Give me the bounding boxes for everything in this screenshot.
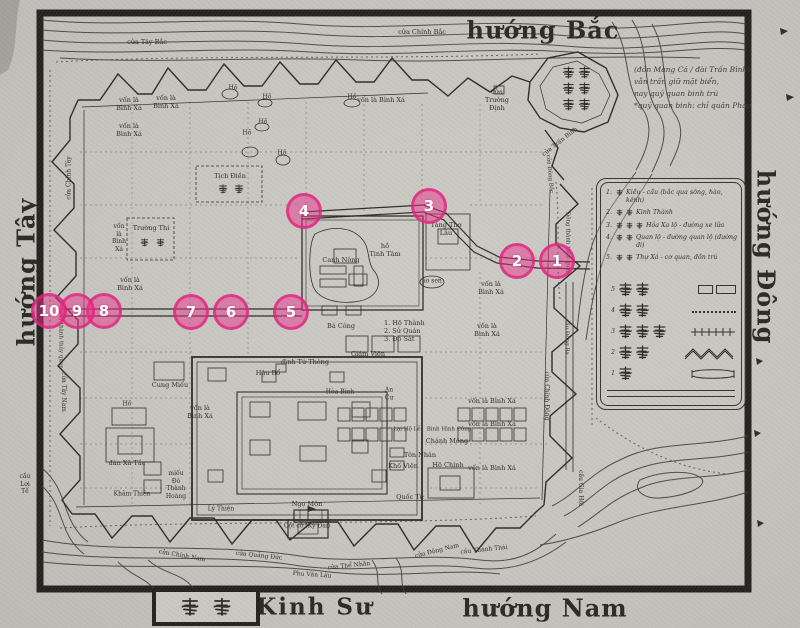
map-marker-4[interactable]: 4 [286,193,322,229]
annotation-markers-layer: 12345678910 [0,0,800,628]
map-marker-1[interactable]: 1 [539,243,575,279]
map-page: hướng Bắc hướng Đông hướng Tây hướng Nam… [0,0,800,628]
map-marker-7[interactable]: 7 [173,294,209,330]
map-marker-10[interactable]: 10 [31,293,67,329]
map-marker-5[interactable]: 5 [273,294,309,330]
map-marker-3[interactable]: 3 [411,188,447,224]
map-marker-6[interactable]: 6 [213,294,249,330]
map-marker-2[interactable]: 2 [499,243,535,279]
